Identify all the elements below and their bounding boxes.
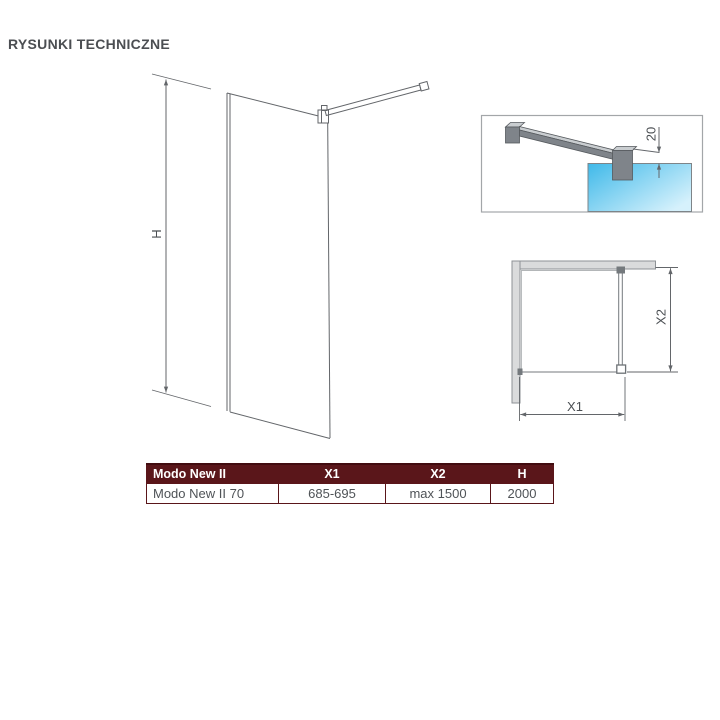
clamp-top-face <box>613 147 637 151</box>
cell-h: 2000 <box>491 484 554 504</box>
panel-bottom-edge <box>230 412 330 439</box>
support-bar-body <box>325 85 421 116</box>
dimensions-table: Modo New II X1 X2 H Modo New II 70 685-6… <box>146 463 554 504</box>
support-bar-front <box>325 82 429 117</box>
support-bar-end-cap <box>419 82 429 91</box>
column-header-model: Modo New II <box>147 464 279 484</box>
table-row: Modo New II 70 685-695 max 1500 2000 <box>147 484 554 504</box>
panel-floor-bracket-plan <box>617 365 626 373</box>
dimensions-table-header: Modo New II X1 X2 H <box>147 464 554 484</box>
glass-panel-front <box>227 93 330 439</box>
width-dimension-label: X1 <box>567 399 583 414</box>
wall-left <box>512 261 520 403</box>
depth-dimension: X2 <box>627 268 678 373</box>
dimension-extension-line <box>152 390 211 407</box>
depth-dimension-label: X2 <box>654 309 669 325</box>
technical-drawing-canvas: H <box>0 0 720 720</box>
wall-top <box>512 261 656 269</box>
wall-anchor-block <box>506 127 520 143</box>
panel-top-edge <box>227 93 319 116</box>
dimension-extension-line <box>152 74 211 89</box>
glass-panel-section <box>588 164 692 212</box>
dimensions-table-body: Modo New II 70 685-695 max 1500 2000 <box>147 484 554 504</box>
floor-profile-end-cap <box>518 369 523 376</box>
column-header-x1: X1 <box>279 464 386 484</box>
top-view-drawing: X1 X2 <box>512 261 678 421</box>
width-dimension: X1 <box>520 377 626 421</box>
clamp-body <box>318 110 329 123</box>
cell-model: Modo New II 70 <box>147 484 279 504</box>
technical-drawings-page: RYSUNKI TECHNICZNE <box>0 0 720 720</box>
panel-clamp-bracket <box>318 106 329 124</box>
offset-dimension-label: 20 <box>644 127 659 141</box>
height-dimension: H <box>149 74 211 407</box>
height-dimension-label: H <box>149 229 164 238</box>
panel-wall-bracket-plan <box>617 267 626 274</box>
mounting-detail-drawing: 20 <box>482 116 703 213</box>
cell-x1: 685-695 <box>279 484 386 504</box>
column-header-x2: X2 <box>386 464 491 484</box>
glass-clamp-block <box>613 151 633 181</box>
column-header-h: H <box>491 464 554 484</box>
front-view-drawing: H <box>149 74 429 439</box>
table-header-row: Modo New II X1 X2 H <box>147 464 554 484</box>
panel-right-edge <box>328 123 330 438</box>
cell-x2: max 1500 <box>386 484 491 504</box>
